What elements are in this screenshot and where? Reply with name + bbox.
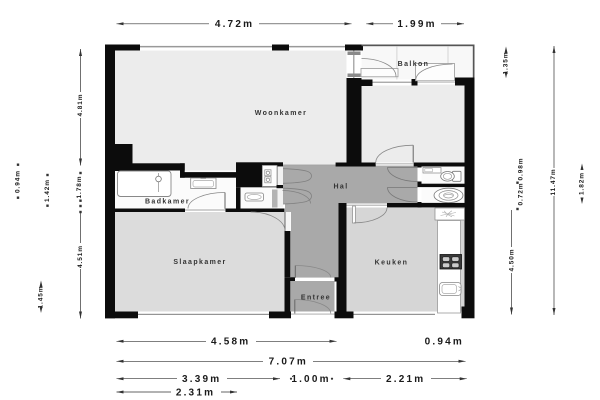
- svg-text:2.31m: 2.31m: [176, 388, 215, 399]
- svg-text:1.00m: 1.00m: [291, 374, 330, 385]
- svg-text:4.51m: 4.51m: [77, 245, 84, 268]
- svg-text:0.72m: 0.72m: [518, 183, 525, 206]
- svg-text:1.35m: 1.35m: [503, 52, 510, 75]
- svg-text:0.94m: 0.94m: [425, 337, 464, 348]
- svg-text:1.82m: 1.82m: [579, 172, 586, 195]
- svg-text:3.39m: 3.39m: [182, 374, 221, 385]
- svg-text:Balkon: Balkon: [398, 61, 430, 68]
- svg-text:Keuken: Keuken: [375, 260, 409, 267]
- svg-text:4.50m: 4.50m: [509, 249, 516, 272]
- svg-text:1.99m: 1.99m: [397, 19, 436, 30]
- svg-text:4.81m: 4.81m: [77, 94, 84, 117]
- svg-text:11.47m: 11.47m: [550, 168, 557, 195]
- svg-text:Hal: Hal: [333, 184, 348, 191]
- svg-text:1.78m: 1.78m: [76, 176, 83, 199]
- svg-text:1.42m: 1.42m: [44, 179, 51, 202]
- svg-text:Entree: Entree: [301, 295, 331, 302]
- svg-text:7.07m: 7.07m: [269, 357, 308, 368]
- svg-text:Badkamer: Badkamer: [145, 199, 190, 206]
- svg-text:2.21m: 2.21m: [386, 374, 425, 385]
- svg-text:1.45m: 1.45m: [38, 286, 45, 309]
- svg-text:Slaapkamer: Slaapkamer: [173, 259, 226, 266]
- svg-text:4.58m: 4.58m: [211, 337, 250, 348]
- svg-text:4.72m: 4.72m: [215, 19, 254, 30]
- svg-text:0.94m: 0.94m: [15, 170, 22, 193]
- svg-text:Woonkamer: Woonkamer: [255, 110, 308, 117]
- svg-text:0.98m: 0.98m: [518, 158, 525, 181]
